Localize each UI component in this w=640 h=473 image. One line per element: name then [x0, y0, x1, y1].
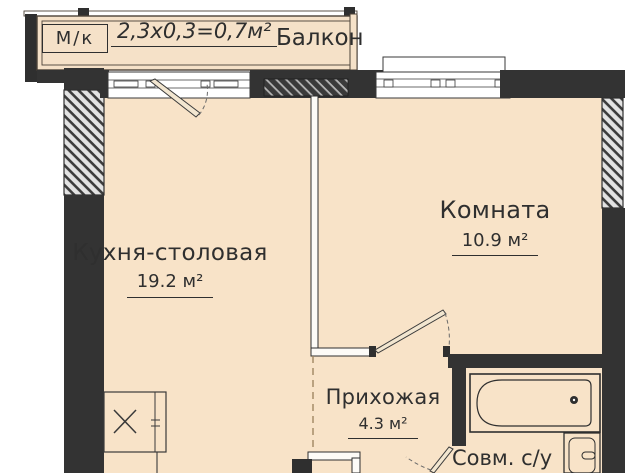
sink-unit-icon — [104, 392, 166, 452]
room-window — [376, 57, 510, 98]
kitchen-label: Кухня-столовая 19.2 м² — [55, 240, 285, 298]
balcony-marking-label: М/к — [56, 28, 94, 49]
kitchen-name: Кухня-столовая — [55, 240, 285, 266]
wall-top-left-stub — [37, 70, 108, 83]
wall-left-solid — [64, 195, 104, 473]
floor-plan: М/к 2,3x0,3=0,7м² Балкон Кухня-столовая … — [0, 0, 640, 473]
balcony-marking-box: М/к — [42, 24, 108, 53]
wall-right-hatched — [602, 98, 623, 208]
wall-right — [602, 98, 625, 473]
door-jamb — [369, 346, 376, 357]
hallway-area: 4.3 м² — [348, 413, 417, 438]
wall-right-solid — [602, 208, 625, 473]
bathroom-wall-left — [452, 368, 466, 446]
bathtub-drain-center — [573, 399, 575, 401]
entrance-wall-vertical — [352, 458, 360, 473]
room-name: Комната — [400, 197, 590, 225]
window-sill — [383, 57, 505, 73]
bathtub-icon — [470, 374, 600, 432]
partition-kitchen-room — [311, 96, 318, 352]
wall-top-middle-hatched — [264, 79, 348, 96]
room-area: 10.9 м² — [452, 229, 539, 257]
balcony-side-wall — [25, 14, 37, 82]
wall-left-hatched — [64, 90, 104, 195]
bathroom-label: Совм. с/у — [452, 446, 612, 470]
entrance-wall-stub — [292, 459, 312, 473]
hallway-label: Прихожая 4.3 м² — [316, 385, 450, 439]
balcony-name-label: Балкон — [276, 25, 364, 51]
hallway-name: Прихожая — [316, 385, 450, 409]
balcony-railing — [24, 11, 357, 16]
kitchen-window — [108, 72, 250, 98]
balcony-dimension-label: 2,3x0,3=0,7м² — [111, 19, 277, 47]
partition-room-hallway — [311, 348, 373, 356]
room-label: Комната 10.9 м² — [400, 197, 590, 256]
wall-top-right — [500, 70, 625, 98]
kitchen-area: 19.2 м² — [127, 270, 214, 298]
bathroom-wall-top — [448, 354, 602, 368]
